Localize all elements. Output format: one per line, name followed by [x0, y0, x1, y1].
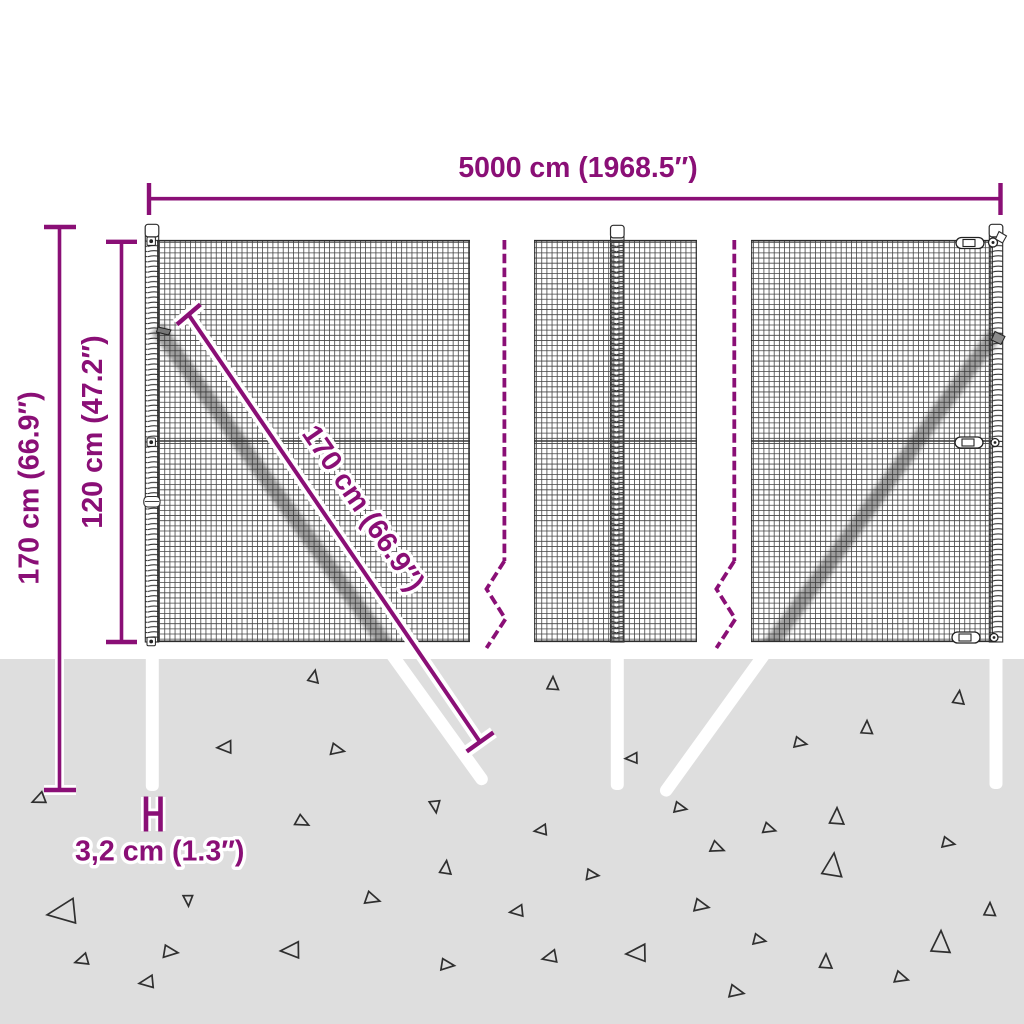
- svg-text:3,2 cm (1.3″): 3,2 cm (1.3″): [75, 836, 244, 868]
- svg-text:170 cm (66.9″): 170 cm (66.9″): [14, 391, 46, 584]
- svg-text:120 cm (47.2″): 120 cm (47.2″): [77, 335, 109, 528]
- svg-text:5000 cm (1968.5″): 5000 cm (1968.5″): [458, 152, 697, 184]
